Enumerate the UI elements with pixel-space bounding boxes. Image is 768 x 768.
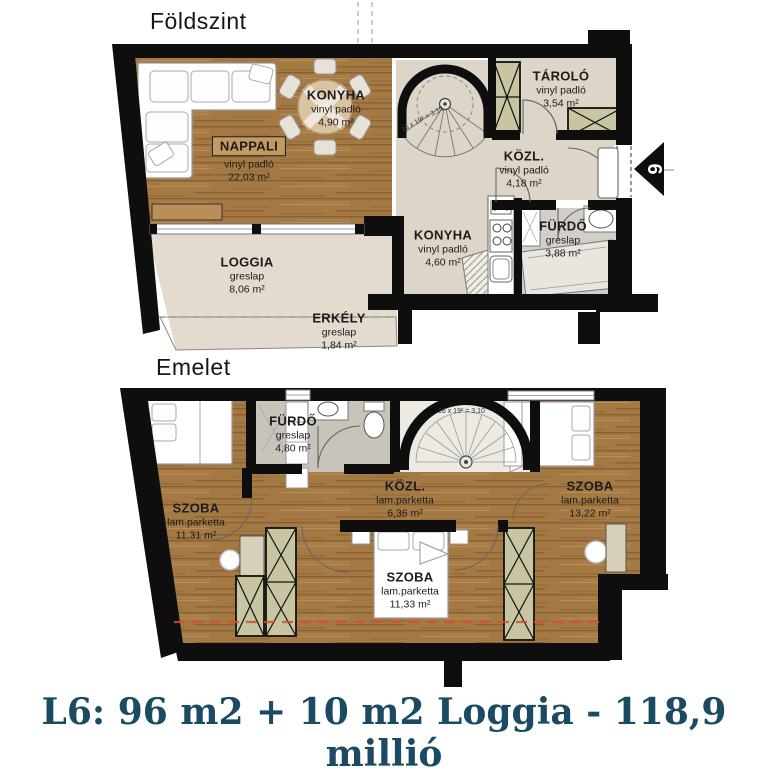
room-floor-type: greslap [539,234,587,247]
ground-floor-plan: 6 [112,2,674,350]
room-name: SZOBA [167,500,225,516]
room-area: 4,80 m² [269,442,317,455]
room-name: LOGGIA [220,254,273,270]
room-area: 4,60 m² [414,256,472,269]
room-area: 3,88 m² [539,247,587,260]
room-name: TÁROLÓ [533,68,590,84]
room-floor-type: vinyl padló [499,164,549,177]
tv-stand [152,204,222,220]
ground-floor-heading: Földszint [150,8,247,35]
entry-marker: 6 [634,142,665,196]
room-area: 8,06 m² [220,283,273,296]
room-label-szoba-middle: SZOBA lam.parketta 11,33 m² [381,569,439,610]
room-area: 4,18 m² [499,177,549,190]
room-area: 22,03 m² [212,171,286,184]
room-floor-type: greslap [312,326,365,339]
room-label-furdo-upper: FÜRDŐ greslap 4,80 m² [269,413,317,454]
floorplan-page: 6 [0,0,768,768]
room-name: KONYHA [414,227,472,243]
listing-title: L6: 96 m2 + 10 m2 Loggia - 118,9 millió [0,691,768,768]
room-label-szoba-right: SZOBA lam.parketta 13,22 m² [561,478,619,519]
room-area: 3,54 m² [533,97,590,110]
upper-stair-note: 16 x 19² = 3,10 [438,408,485,415]
room-name: KÖZL. [376,478,434,494]
room-name: ERKÉLY [312,310,365,326]
room-name: FÜRDŐ [539,218,587,234]
room-area: 11,33 m² [381,598,439,611]
room-area: 6,36 m² [376,507,434,520]
floor-plan-svg: 6 [0,0,768,768]
room-area: 1,84 m² [312,339,365,352]
room-floor-type: greslap [220,270,273,283]
loggia-window-band [150,224,364,234]
room-name: KÖZL. [499,148,549,164]
room-label-tarolo: TÁROLÓ vinyl padló 3,54 m² [533,68,590,109]
room-floor-type: vinyl padló [212,158,286,171]
room-name: FÜRDŐ [269,413,317,429]
room-name: KONYHA [307,87,365,103]
room-label-szoba-left: SZOBA lam.parketta 11,31 m² [167,500,225,541]
room-floor-type: lam.parketta [381,585,439,598]
room-floor-type: vinyl padló [307,103,365,116]
room-label-kozl-upper: KÖZL. lam.parketta 6,36 m² [376,478,434,519]
room-label-konyha-etkezo: KONYHA vinyl padló 4,90 m² [307,87,365,128]
room-area: 11,31 m² [167,529,225,542]
room-floor-type: greslap [269,429,317,442]
room-label-furdo-ground: FÜRDŐ greslap 3,88 m² [539,218,587,259]
upper-floor-heading: Emelet [156,354,231,381]
entry-marker-number: 6 [643,163,665,174]
room-name: NAPPALI [212,136,286,156]
room-name: SZOBA [381,569,439,585]
room-label-nappali: NAPPALI vinyl padló 22,03 m² [212,136,286,183]
room-label-kozl-ground: KÖZL. vinyl padló 4,18 m² [499,148,549,189]
room-floor-type: lam.parketta [376,494,434,507]
room-area: 13,22 m² [561,507,619,520]
room-floor-type: lam.parketta [561,494,619,507]
room-label-loggia: LOGGIA greslap 8,06 m² [220,254,273,295]
room-floor-type: lam.parketta [167,516,225,529]
room-name: SZOBA [561,478,619,494]
room-floor-type: vinyl padló [533,84,590,97]
room-label-erkely: ERKÉLY greslap 1,84 m² [312,310,365,351]
room-area: 4,90 m² [307,116,365,129]
room-label-konyha: KONYHA vinyl padló 4,60 m² [414,227,472,268]
room-floor-type: vinyl padló [414,243,472,256]
